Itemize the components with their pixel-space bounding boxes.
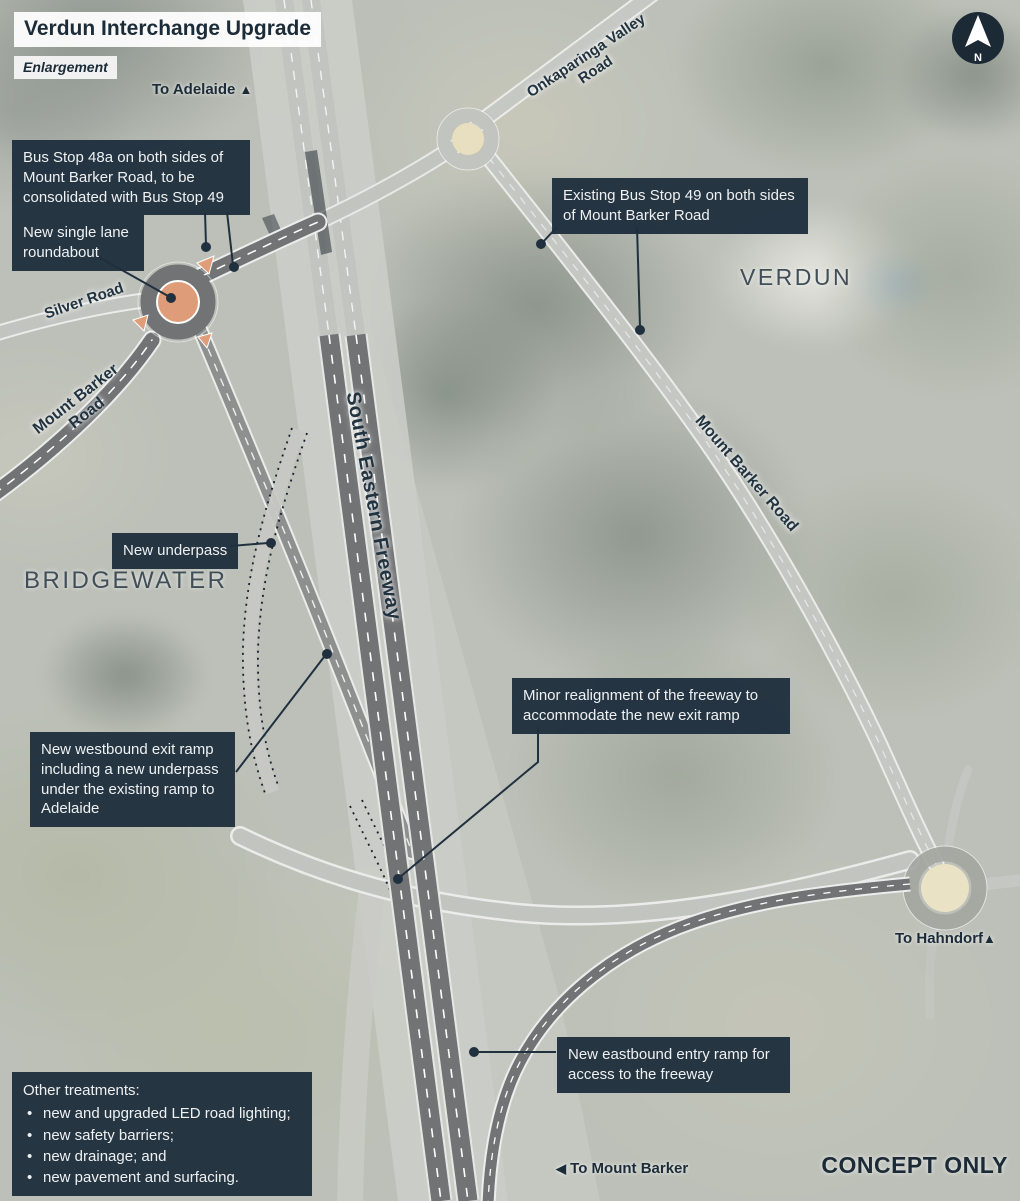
list-item: new and upgraded LED road lighting; <box>23 1103 301 1124</box>
to-mount-barker-text: To Mount Barker <box>570 1160 688 1177</box>
callout-new-underpass: New underpass <box>112 533 238 569</box>
to-hahndorf-label: To Hahndorf▲ <box>895 930 996 947</box>
north-arrow-icon: N <box>952 12 1004 64</box>
to-hahndorf-text: To Hahndorf <box>895 930 983 947</box>
callout-bus-stop-48a: Bus Stop 48a on both sides of Mount Bark… <box>12 140 250 215</box>
callout-eastbound-entry-ramp: New eastbound entry ramp for access to t… <box>557 1037 790 1093</box>
callout-bus-stop-49: Existing Bus Stop 49 on both sides of Mo… <box>552 178 808 234</box>
up-arrow-icon: ▲ <box>240 82 253 97</box>
to-mount-barker-label: ◀ To Mount Barker <box>556 1160 688 1177</box>
page-title: Verdun Interchange Upgrade <box>14 12 321 47</box>
svg-text:N: N <box>974 52 982 64</box>
list-item: new safety barriers; <box>23 1125 301 1146</box>
list-item: new pavement and surfacing. <box>23 1167 301 1188</box>
to-adelaide-text: To Adelaide <box>152 81 235 98</box>
place-label-verdun: VERDUN <box>740 264 852 291</box>
place-label-bridgewater: BRIDGEWATER <box>24 567 228 595</box>
other-treatments-box: Other treatments: new and upgraded LED r… <box>12 1072 312 1196</box>
other-treatments-heading: Other treatments: <box>23 1080 301 1101</box>
onkaparinga-roundabout <box>437 108 499 170</box>
list-item: new drainage; and <box>23 1146 301 1167</box>
left-arrow-icon: ◀ <box>556 1161 566 1176</box>
concept-only-watermark: CONCEPT ONLY <box>821 1152 1008 1179</box>
up-arrow-icon: ▲ <box>983 931 996 946</box>
verdun-interchange-map: N Verdun Interchange Upgrade Enlargement… <box>0 0 1020 1201</box>
hahndorf-roundabout <box>903 846 987 930</box>
callout-new-roundabout: New single lane roundabout <box>12 215 144 271</box>
other-treatments-list: new and upgraded LED road lighting; new … <box>23 1103 301 1188</box>
callout-freeway-realignment: Minor realignment of the freeway to acco… <box>512 678 790 734</box>
to-adelaide-label: To Adelaide ▲ <box>152 81 252 98</box>
page-subtitle: Enlargement <box>14 56 117 79</box>
callout-westbound-exit-ramp: New westbound exit ramp including a new … <box>30 732 235 827</box>
